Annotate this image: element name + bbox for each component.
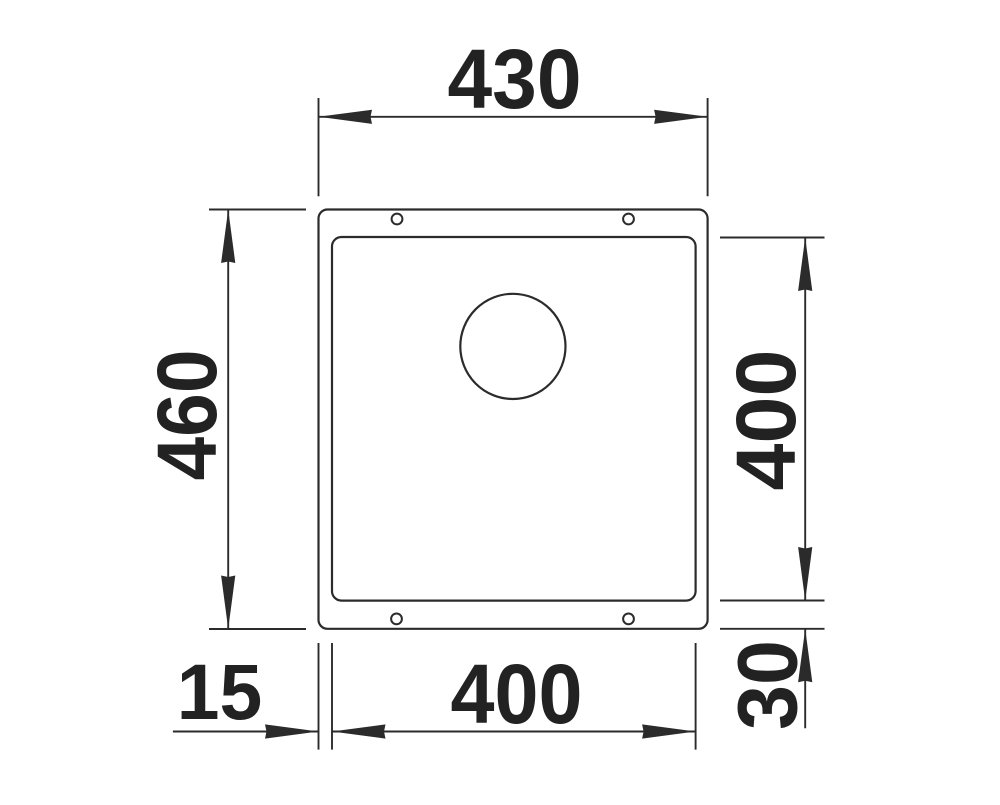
svg-text:400: 400 [451,647,583,741]
svg-text:15: 15 [177,647,263,736]
svg-text:30: 30 [721,640,815,730]
svg-text:460: 460 [140,350,234,481]
svg-text:430: 430 [448,32,582,126]
svg-text:400: 400 [719,350,813,491]
